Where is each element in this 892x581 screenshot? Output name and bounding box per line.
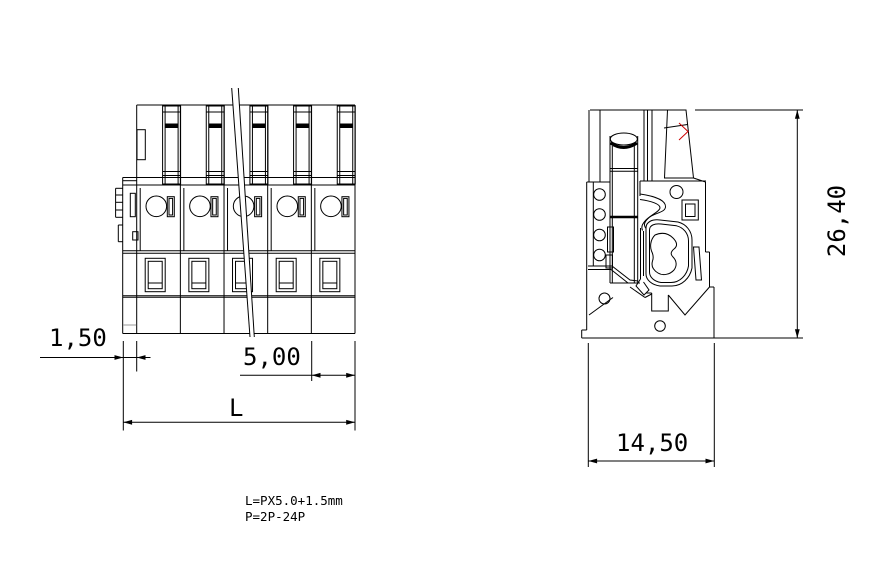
front-latch-slot (137, 130, 145, 160)
dim-label-depth: 14,50 (616, 431, 688, 455)
dim-label-offset: 1,50 (49, 326, 107, 350)
dim-label-pitch: 5,00 (243, 345, 301, 369)
dim-label-length: L (229, 396, 243, 420)
note-pole-range: P=2P-24P (245, 509, 305, 525)
note-length-formula: L=PX5.0+1.5mm (245, 493, 343, 509)
dim-label-height: 26,40 (822, 173, 852, 269)
side-plunger (610, 133, 640, 283)
side-lever (664, 110, 694, 178)
front-left-comb (116, 188, 138, 241)
side-clamp-cavity (646, 220, 692, 286)
technical-drawing: 1,50 5,00 L 26,40 14,50 L=PX5.0+1.5mm P=… (0, 0, 892, 581)
side-view (582, 110, 714, 338)
drawing-canvas (0, 0, 892, 581)
dim-pitch-offset (40, 341, 151, 431)
